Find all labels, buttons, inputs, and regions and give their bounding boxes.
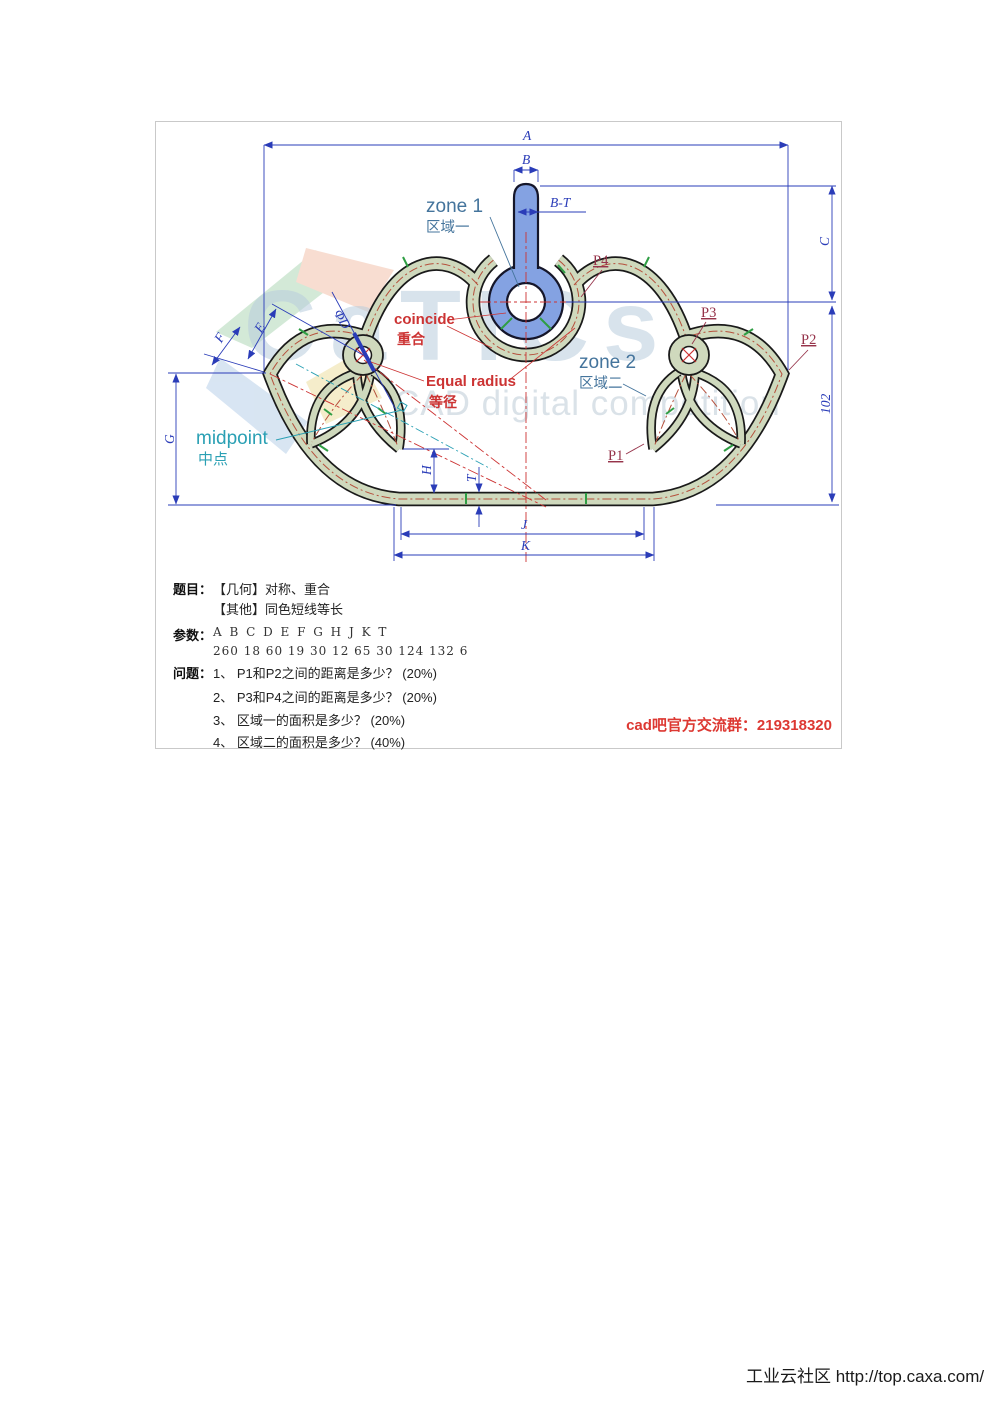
dim-K: K (520, 538, 531, 553)
params-values: 260 18 60 19 30 12 65 30 124 132 6 (213, 644, 468, 658)
dim-G: G (162, 434, 177, 444)
question-item-2: 2、 P3和P4之间的距离是多少？ (20%) (213, 687, 437, 706)
zone1-label-zh: 区域一 (426, 219, 470, 236)
midpoint-label-zh: 中点 (198, 451, 228, 468)
dim-BT: B-T (550, 195, 572, 210)
title-label: 题目： (173, 579, 212, 598)
dim-T: T (464, 473, 479, 482)
dim-A: A (522, 128, 532, 143)
equal-radius-label-zh: 等径 (429, 394, 457, 410)
zone2-label-zh: 区域二 (579, 375, 623, 392)
coincide-label-zh: 重合 (397, 331, 426, 347)
params-letters: A B C D E F G H J K T (213, 625, 388, 639)
questions-label: 问题： (173, 663, 212, 682)
question-item-1: 1、 P1和P2之间的距离是多少？ (20%) (213, 663, 437, 682)
title-line2: 【其他】同色短线等长 (213, 599, 343, 618)
p4-label: P4 (593, 253, 609, 269)
worksheet-panel: CaTICs CAD digital competition (155, 121, 842, 749)
p3-label: P3 (701, 305, 716, 321)
coincide-label: coincide (394, 311, 455, 328)
site-footer: 工业云社区 http://top.caxa.com/ (746, 1362, 984, 1387)
qq-group-notice: cad吧官方交流群：219318320 (576, 714, 832, 735)
right-junction-circle (669, 335, 709, 375)
dim-H: H (419, 464, 434, 476)
p2-label: P2 (801, 332, 816, 348)
zone1-label: zone 1 (426, 196, 483, 217)
dim-C: C (817, 236, 832, 246)
dim-B: B (522, 152, 530, 167)
midpoint-label: midpoint (196, 428, 269, 449)
question-item-4: 4、 区域二的面积是多少？ (40%) (213, 732, 405, 751)
dim-102: 102 (818, 394, 833, 415)
question-item-3: 3、 区域一的面积是多少？ (20%) (213, 710, 405, 729)
params-label: 参数： (173, 625, 212, 644)
dim-J: J (521, 517, 528, 532)
title-line1: 【几何】对称、重合 (213, 579, 330, 598)
zone2-label: zone 2 (579, 352, 636, 373)
p1-label: P1 (608, 448, 623, 464)
equal-radius-label: Equal radius (426, 373, 516, 390)
